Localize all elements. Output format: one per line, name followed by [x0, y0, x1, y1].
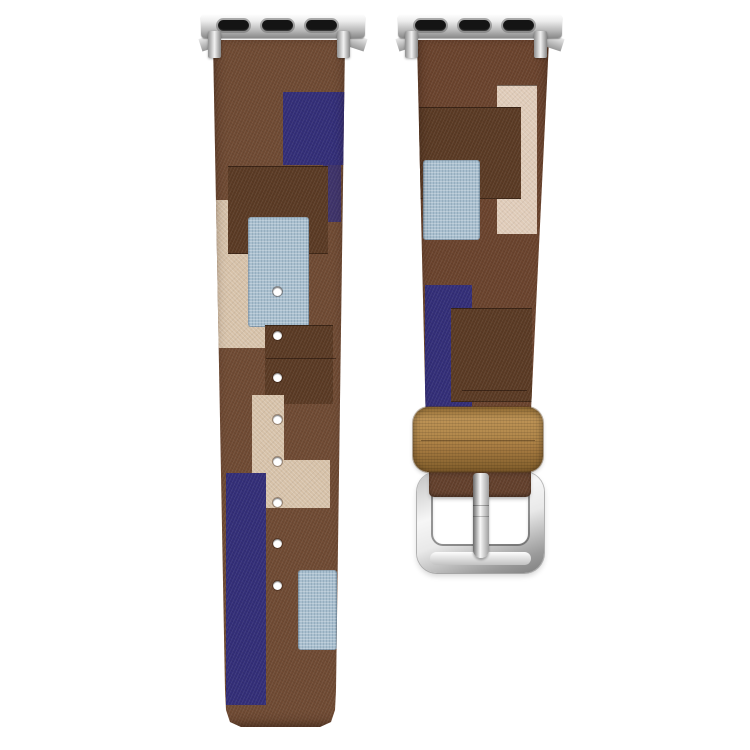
adapter-slot [262, 20, 293, 31]
right-adapter [398, 14, 562, 62]
keeper-crease [421, 440, 535, 441]
adapter-post-left [208, 31, 221, 58]
adapter-slot [503, 20, 534, 31]
prong-joint-line [473, 505, 489, 517]
adjustment-hole [273, 498, 282, 507]
adjustment-hole [273, 581, 282, 590]
adjustment-hole [273, 331, 282, 340]
product-description: Two-piece patchwork fabric watch strap i… [0, 0, 1, 1]
patch-navy-top-right [283, 92, 349, 165]
adjustment-hole [273, 457, 282, 466]
adjustment-hole [273, 373, 282, 382]
adjustment-hole [273, 415, 282, 424]
patch-navy-bottom-left [226, 473, 266, 705]
patch-light-blue-bottom [298, 570, 337, 650]
product-photo: Two-piece patchwork fabric watch strap i… [0, 0, 750, 750]
patch-dark-brown-center [451, 308, 532, 402]
buckle-prong [473, 473, 489, 558]
adjustment-hole [273, 287, 282, 296]
stitch-line [266, 358, 336, 359]
stitch-line [462, 390, 527, 391]
adapter-slot [218, 20, 249, 31]
patch-cream-vertical [252, 395, 284, 462]
adapter-slot [415, 20, 446, 31]
adapter-post-right [534, 31, 547, 58]
adapter-post-right [337, 31, 350, 58]
adapter-slot [459, 20, 490, 31]
patch-light-blue-left [423, 160, 480, 240]
left-strap [211, 40, 349, 727]
left-adapter [201, 14, 365, 62]
adapter-post-left [405, 31, 418, 58]
keeper-loop [413, 407, 543, 472]
adapter-slot [306, 20, 337, 31]
patch-light-blue-center [248, 217, 309, 327]
adjustment-hole [273, 539, 282, 548]
